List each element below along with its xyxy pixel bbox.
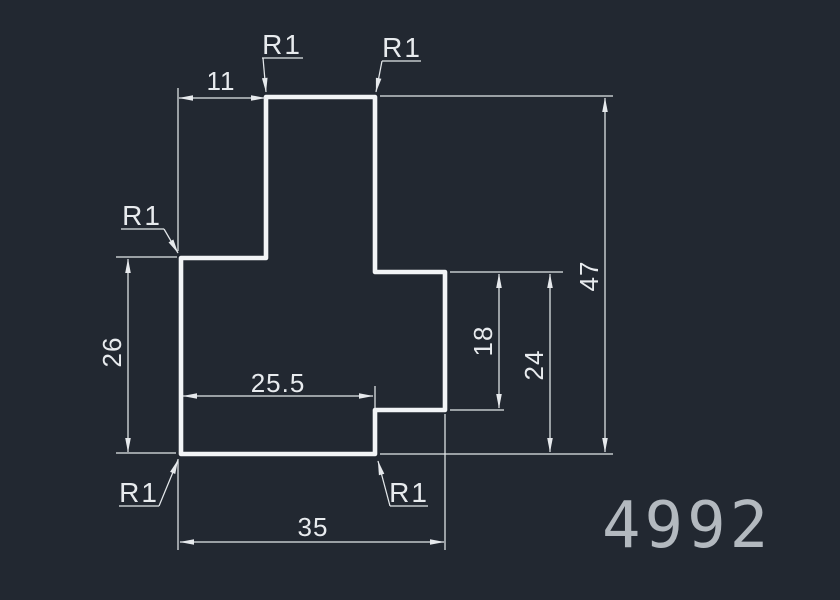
radius-label: R1 xyxy=(382,32,422,63)
dimension-text: 35 xyxy=(298,512,329,542)
part-number: 4992 xyxy=(602,489,772,563)
dimension-text: 26 xyxy=(97,337,127,368)
dimension-text: 25.5 xyxy=(251,368,306,398)
radius-label: R1 xyxy=(122,200,162,231)
cad-canvas: 11 26 25.5 18 24 47 35 xyxy=(0,0,840,600)
dimension-text: 11 xyxy=(207,66,236,96)
radius-label: R1 xyxy=(119,477,159,508)
dimension-text: 47 xyxy=(574,261,604,292)
dimension-text: 18 xyxy=(468,326,498,357)
radius-label: R1 xyxy=(262,29,302,60)
radius-label: R1 xyxy=(389,477,429,508)
cad-drawing: 11 26 25.5 18 24 47 35 xyxy=(0,0,840,600)
dimension-text: 24 xyxy=(519,350,549,381)
